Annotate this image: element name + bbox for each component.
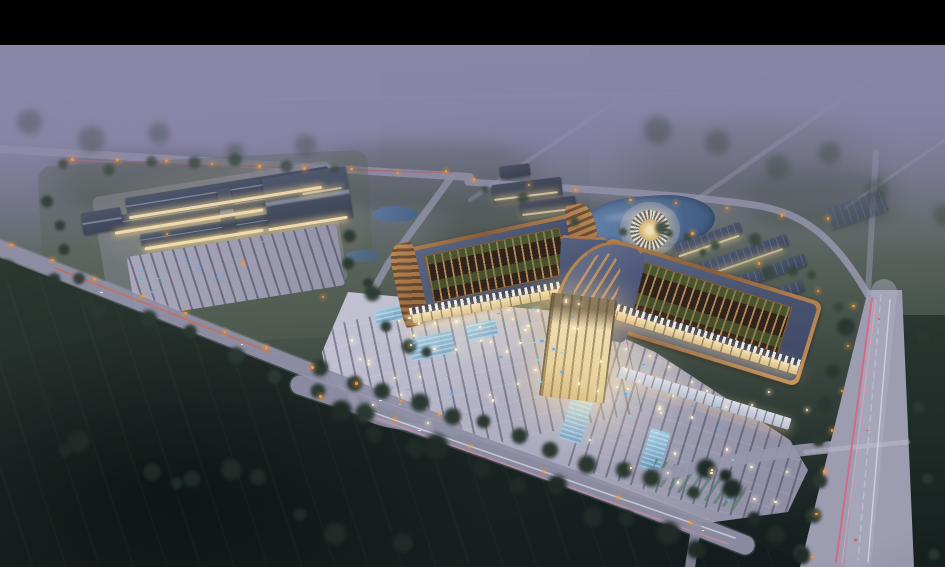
do-decor <box>303 167 305 169</box>
dw-decor <box>627 388 629 390</box>
dw-decor <box>806 409 808 411</box>
db-decor <box>716 407 719 409</box>
dwc-decor <box>379 400 382 401</box>
db-decor <box>262 241 265 243</box>
dc-decor <box>399 404 401 405</box>
do-decor <box>823 470 825 472</box>
do-decor <box>574 189 576 191</box>
do-decor <box>758 262 760 264</box>
dw-decor <box>649 355 651 357</box>
do-decor <box>394 418 396 420</box>
dw-decor <box>508 309 510 311</box>
dw-decor <box>372 404 374 406</box>
do-decor <box>93 278 95 280</box>
dw-decor <box>368 360 370 362</box>
dw-decor <box>672 395 674 397</box>
do-decor <box>211 163 213 165</box>
dw-decor <box>630 467 632 469</box>
do-decor <box>675 202 677 204</box>
db-decor <box>699 414 702 416</box>
dw-decor <box>668 366 670 368</box>
dw-decor <box>616 386 618 388</box>
do-decor <box>811 556 813 558</box>
dw-decor <box>750 466 752 468</box>
aerial-rendering-canvas <box>0 0 945 567</box>
dw-decor <box>706 390 708 392</box>
dw-decor <box>751 404 753 406</box>
dw-decor <box>667 472 669 474</box>
do-decor <box>473 178 475 180</box>
dw-decor <box>408 317 410 319</box>
dw-decor <box>490 341 492 343</box>
dw-decor <box>492 399 494 401</box>
db-decor <box>217 276 220 278</box>
dc-decor <box>630 416 632 417</box>
db-decor <box>624 393 627 395</box>
db-decor <box>497 313 500 315</box>
dw-decor <box>433 348 435 350</box>
drc-decor <box>866 430 869 431</box>
do-decor <box>528 184 530 186</box>
dw-decor <box>418 322 420 324</box>
dw-decor <box>786 471 788 473</box>
do-decor <box>438 414 440 416</box>
do-decor <box>781 214 783 216</box>
dw-decor <box>434 322 436 324</box>
dw-decor <box>419 376 421 378</box>
dc-decor <box>455 363 457 364</box>
dwc-decor <box>100 292 103 293</box>
do-decor <box>817 290 819 292</box>
do-decor <box>141 295 143 297</box>
db-decor <box>390 387 393 389</box>
dc-decor <box>732 459 734 460</box>
dw-decor <box>527 325 529 327</box>
drc-decor <box>854 539 857 540</box>
dw-decor <box>768 391 770 393</box>
do-decor <box>543 470 545 472</box>
dc-decor <box>561 352 563 353</box>
dw-decor <box>359 358 361 360</box>
db-decor <box>151 291 154 293</box>
do-decor <box>184 312 186 314</box>
do-decor <box>242 262 244 264</box>
dc-decor <box>553 350 555 351</box>
dw-decor <box>455 348 457 350</box>
do-decor <box>224 331 226 333</box>
do-decor <box>355 382 357 384</box>
db-decor <box>748 491 751 493</box>
do-decor <box>629 199 631 201</box>
db-decor <box>198 267 201 269</box>
dw-decor <box>674 452 676 454</box>
dw-decor <box>691 416 693 418</box>
db-decor <box>571 316 574 318</box>
dw-decor <box>455 320 457 322</box>
dw-decor <box>537 309 539 311</box>
dw-decor <box>351 339 353 341</box>
db-decor <box>718 427 721 429</box>
dw-decor <box>600 360 602 362</box>
db-decor <box>560 371 563 373</box>
dw-decor <box>534 369 536 371</box>
dc-decor <box>532 308 534 309</box>
dw-decor <box>479 326 481 328</box>
dw-decor <box>578 382 580 384</box>
dw-decor <box>753 498 755 500</box>
dwc-decor <box>702 530 705 531</box>
dw-decor <box>413 334 415 336</box>
dc-decor <box>539 381 541 382</box>
db-decor <box>620 435 623 437</box>
db-decor <box>450 393 453 395</box>
dwc-decor <box>241 344 244 345</box>
dw-decor <box>660 412 662 414</box>
db-decor <box>540 340 543 342</box>
dw-decor <box>517 383 519 385</box>
dw-decor <box>410 344 412 346</box>
light-dots <box>0 0 945 567</box>
do-decor <box>827 217 829 219</box>
do-decor <box>831 429 833 431</box>
dw-decor <box>573 327 575 329</box>
do-decor <box>166 233 168 235</box>
dw-decor <box>512 318 514 320</box>
db-decor <box>642 364 645 366</box>
dw-decor <box>691 381 693 383</box>
db-decor <box>691 405 694 407</box>
db-decor <box>413 342 416 344</box>
db-decor <box>234 259 237 261</box>
dw-decor <box>577 328 579 330</box>
dc-decor <box>634 407 636 408</box>
dw-decor <box>398 320 400 322</box>
db-decor <box>499 356 502 358</box>
db-decor <box>727 499 730 501</box>
do-decor <box>258 165 260 167</box>
do-decor <box>852 305 854 307</box>
dw-decor <box>658 408 660 410</box>
dw-decor <box>400 394 402 396</box>
dw-decor <box>519 342 521 344</box>
dw-decor <box>480 339 482 341</box>
do-decor <box>617 496 619 498</box>
dc-decor <box>536 359 538 360</box>
drc-decor <box>878 318 881 319</box>
dw-decor <box>725 406 727 408</box>
dw-decor <box>427 422 429 424</box>
dc-decor <box>759 411 761 412</box>
do-decor <box>71 158 73 160</box>
do-decor <box>116 159 118 161</box>
do-decor <box>841 390 843 392</box>
dc-decor <box>645 368 647 369</box>
dc-decor <box>713 404 715 405</box>
do-decor <box>726 207 728 209</box>
dw-decor <box>565 301 567 303</box>
do-decor <box>815 513 817 515</box>
do-decor <box>322 296 324 298</box>
dw-decor <box>489 394 491 396</box>
dw-decor <box>710 472 712 474</box>
dw-decor <box>711 469 713 471</box>
dc-decor <box>533 342 535 343</box>
do-decor <box>319 395 321 397</box>
do-decor <box>165 160 167 162</box>
do-decor <box>469 446 471 448</box>
dw-decor <box>597 390 599 392</box>
do-decor <box>350 168 352 170</box>
dw-decor <box>726 448 728 450</box>
dwc-decor <box>418 430 421 431</box>
dw-decor <box>506 350 508 352</box>
letterbox-top-bar <box>0 0 945 45</box>
dw-decor <box>524 329 526 331</box>
do-decor <box>10 244 12 246</box>
do-decor <box>689 522 691 524</box>
dw-decor <box>589 439 591 441</box>
do-decor <box>51 259 53 261</box>
dw-decor <box>677 481 679 483</box>
db-decor <box>407 389 410 391</box>
do-decor <box>397 172 399 174</box>
do-decor <box>847 345 849 347</box>
db-decor <box>139 278 142 280</box>
do-decor <box>311 366 313 368</box>
dw-decor <box>625 369 627 371</box>
do-decor <box>265 346 267 348</box>
do-decor <box>400 400 402 402</box>
dw-decor <box>578 303 580 305</box>
db-decor <box>238 267 241 269</box>
db-decor <box>141 270 144 272</box>
db-decor <box>685 417 688 419</box>
db-decor <box>158 278 161 280</box>
dw-decor <box>638 380 640 382</box>
do-decor <box>691 232 693 234</box>
dw-decor <box>774 501 776 503</box>
dc-decor <box>683 397 685 398</box>
dw-decor <box>394 377 396 379</box>
do-decor <box>445 170 447 172</box>
dw-decor <box>625 348 627 350</box>
db-decor <box>184 260 187 262</box>
dw-decor <box>368 363 370 365</box>
